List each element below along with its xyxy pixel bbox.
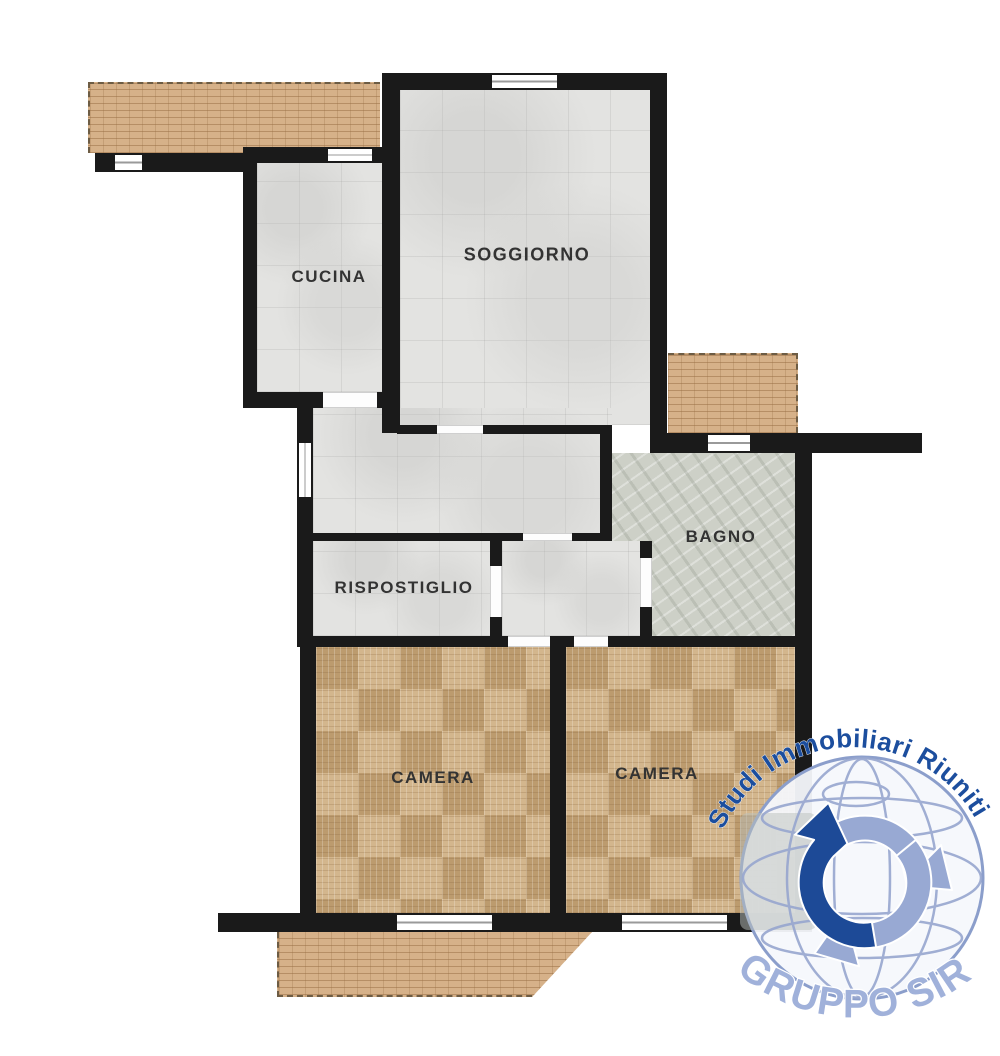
agency-watermark: Studi Immobiliari Riuniti GRUPPO SIR xyxy=(660,700,1000,1056)
wall xyxy=(243,147,397,163)
wall xyxy=(382,73,400,433)
wall xyxy=(300,636,316,915)
window xyxy=(492,73,557,90)
wall xyxy=(243,147,257,408)
wall xyxy=(600,433,612,541)
wall xyxy=(397,425,612,434)
window xyxy=(397,913,492,932)
door-opening xyxy=(640,558,652,607)
door-opening xyxy=(574,636,608,647)
door-opening xyxy=(523,533,572,541)
door-opening xyxy=(490,566,502,617)
wall xyxy=(550,642,566,915)
floor-plan: CUCINA SOGGIORNO RISPOSTIGLIO BAGNO CAME… xyxy=(0,0,1000,1056)
wall xyxy=(650,73,667,437)
window xyxy=(708,433,750,453)
door-opening xyxy=(437,425,483,434)
window xyxy=(328,147,372,163)
door-opening xyxy=(323,392,377,408)
door-opening xyxy=(508,636,550,647)
floor-disimpegno xyxy=(502,541,640,636)
terrace-right xyxy=(668,353,798,433)
terrace-bottom xyxy=(277,932,592,997)
room-label-rispostiglio: RISPOSTIGLIO xyxy=(335,578,474,598)
wall xyxy=(650,433,922,453)
room-label-cucina: CUCINA xyxy=(291,267,366,287)
room-label-soggiorno: SOGGIORNO xyxy=(464,245,591,266)
window xyxy=(297,443,313,497)
terrace-top-left xyxy=(88,82,380,153)
room-label-bagno: BAGNO xyxy=(686,527,757,547)
room-label-camera-left: CAMERA xyxy=(391,768,475,788)
window xyxy=(115,153,142,172)
